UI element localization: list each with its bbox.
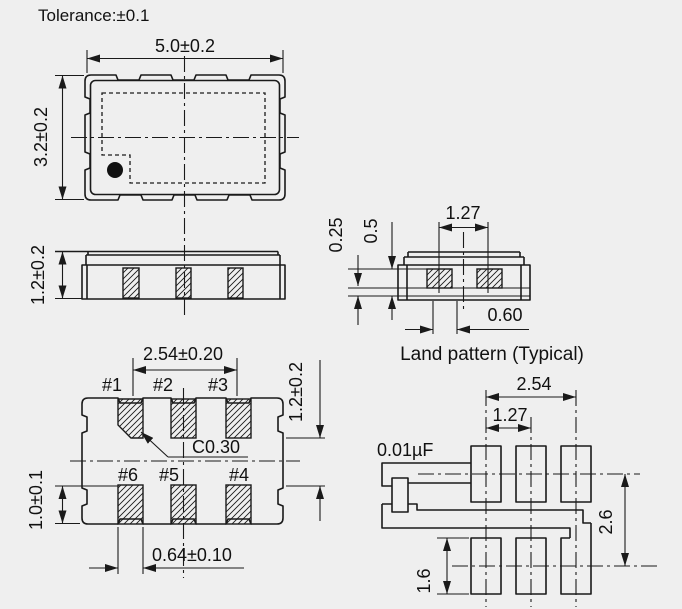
land-height-dim: 0.5 xyxy=(361,218,381,243)
pad-4 xyxy=(226,485,251,524)
ls-pad xyxy=(477,269,502,288)
land-pattern-caption: Land pattern (Typical) xyxy=(400,344,584,365)
pad-height-dim: 1.0±0.1 xyxy=(26,470,46,530)
bottom-pitch-dim: 2.54±0.20 xyxy=(143,344,223,364)
package-drawing-page: Tolerance:±0.1 5.0±0.2 3.2±0.2 xyxy=(0,0,682,609)
top-height-dim: 3.2±0.2 xyxy=(31,107,51,167)
side-height-dim: 1.2±0.2 xyxy=(28,245,48,305)
row-gap-dim: 1.2±0.2 xyxy=(286,362,306,422)
side-pad xyxy=(123,268,139,298)
side-pad xyxy=(176,268,191,298)
lp-row-spacing-dim: 2.6 xyxy=(596,509,616,534)
top-width-dim: 5.0±0.2 xyxy=(155,36,215,56)
pad-width-dim: 0.64±0.10 xyxy=(152,545,232,565)
pin-label-2: #2 xyxy=(153,375,173,395)
pin1-marker-dot xyxy=(107,162,123,178)
technical-drawing: Tolerance:±0.1 5.0±0.2 3.2±0.2 xyxy=(0,0,682,609)
pad-6 xyxy=(118,485,143,524)
pad-3 xyxy=(226,399,251,438)
pin-label-6: #6 xyxy=(118,465,138,485)
lp-pad-height-dim: 1.6 xyxy=(414,568,434,593)
lp-half-pitch-dim: 1.27 xyxy=(492,405,527,425)
land-protrusion-dim: 0.25 xyxy=(326,217,346,252)
pin-label-4: #4 xyxy=(229,465,249,485)
pin-label-1: #1 xyxy=(102,375,122,395)
tolerance-note: Tolerance:±0.1 xyxy=(38,6,149,25)
pin-label-3: #3 xyxy=(208,375,228,395)
capacitor-label: 0.01µF xyxy=(377,440,433,460)
drawing-background xyxy=(0,0,682,609)
ls-gap-dim: 0.60 xyxy=(487,305,522,325)
pin-label-5: #5 xyxy=(159,465,179,485)
chamfer-dim: C0.30 xyxy=(192,437,240,457)
lp-pitch-dim: 2.54 xyxy=(516,374,551,394)
side-pad xyxy=(228,268,243,298)
ls-pitch-dim: 1.27 xyxy=(445,203,480,223)
